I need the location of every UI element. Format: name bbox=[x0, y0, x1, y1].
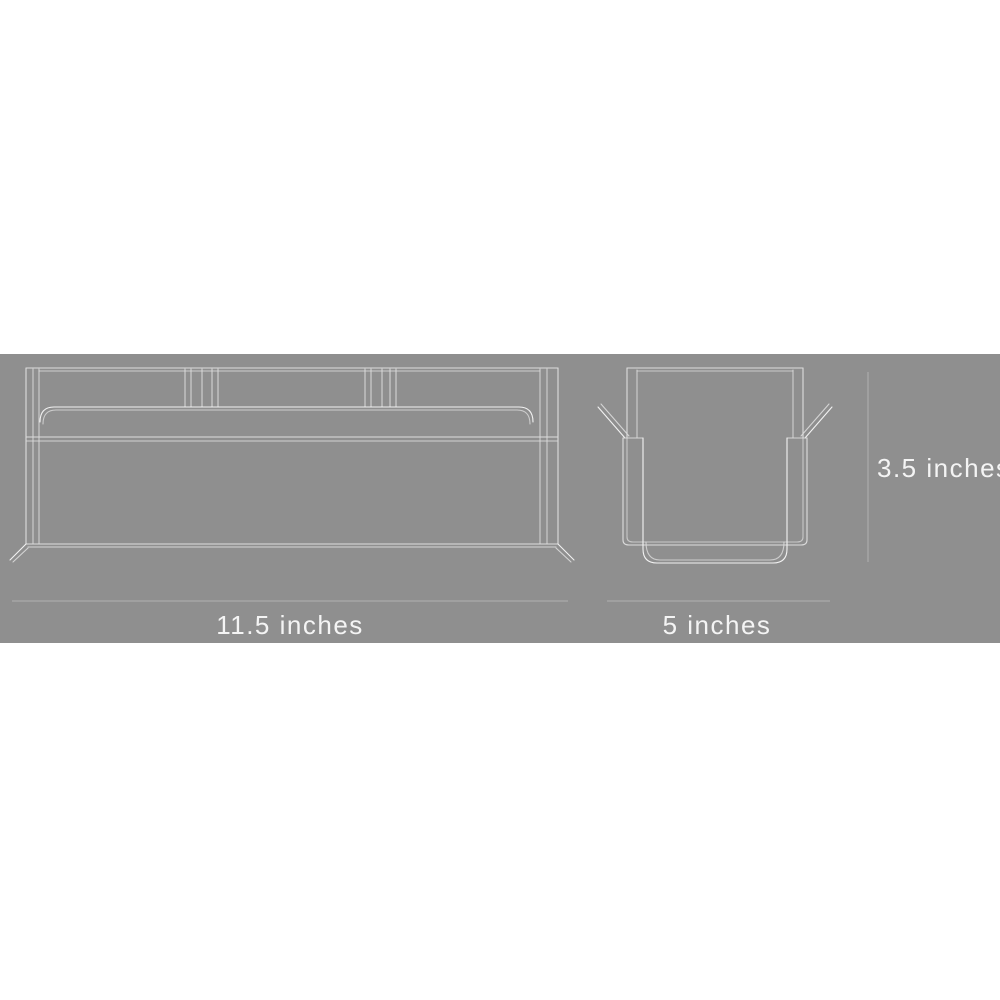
diagram-panel: 11.5 inches 5 inches 3.5 inches bbox=[0, 354, 1000, 643]
front-view-drawing bbox=[10, 368, 574, 562]
screenshot-canvas: 11.5 inches 5 inches 3.5 inches bbox=[0, 0, 1000, 1000]
side-view-drawing bbox=[598, 368, 832, 563]
height-label: 3.5 inches bbox=[877, 455, 1000, 481]
dimension-drawing bbox=[0, 354, 1000, 643]
side-depth-label: 5 inches bbox=[617, 612, 817, 638]
front-width-label: 11.5 inches bbox=[150, 612, 430, 638]
dimension-lines bbox=[12, 372, 868, 601]
